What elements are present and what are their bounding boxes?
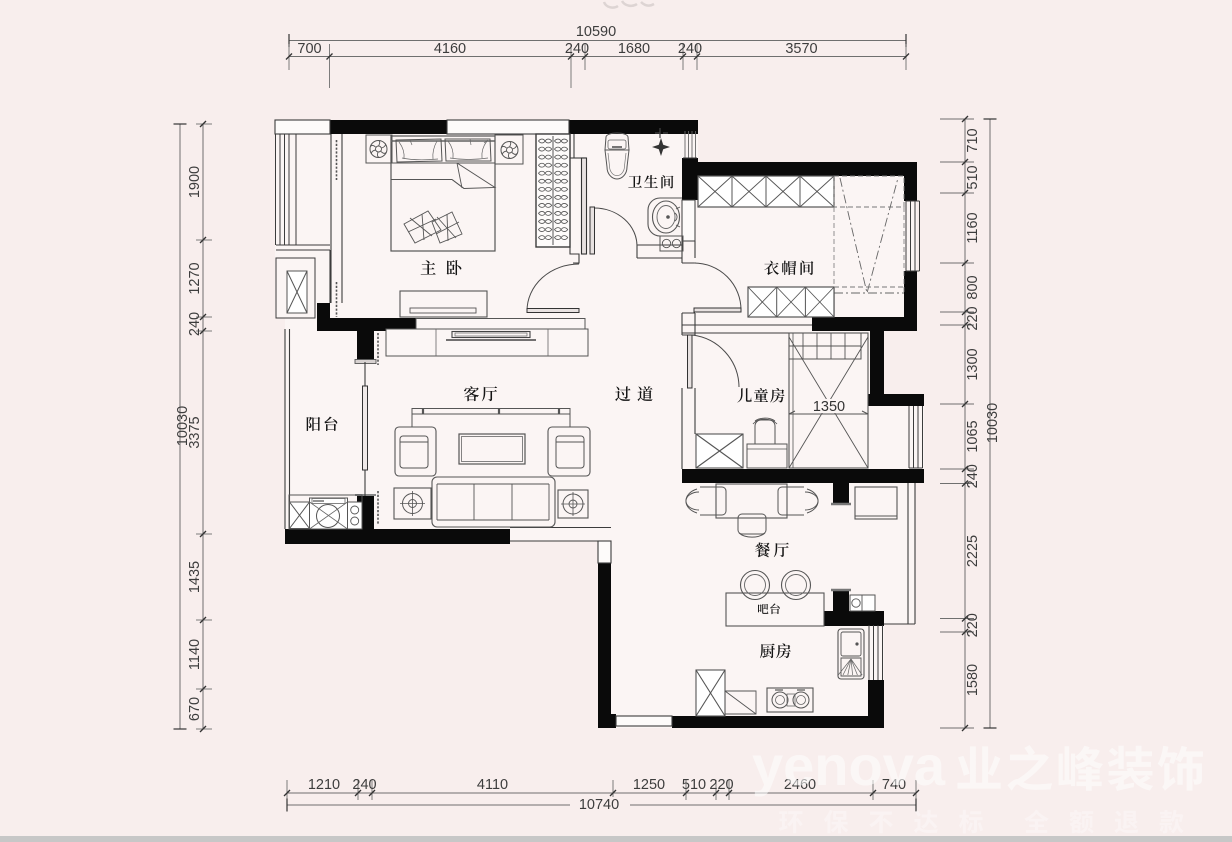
svg-text:1270: 1270 — [187, 262, 203, 294]
svg-text:240: 240 — [187, 312, 203, 336]
svg-text:220: 220 — [965, 613, 981, 637]
svg-text:2225: 2225 — [965, 535, 981, 567]
svg-text:10590: 10590 — [576, 24, 616, 40]
svg-text:510: 510 — [682, 777, 706, 793]
svg-text:240: 240 — [678, 41, 702, 57]
svg-text:1065: 1065 — [965, 420, 981, 452]
svg-text:220: 220 — [709, 777, 733, 793]
svg-text:1680: 1680 — [618, 41, 650, 57]
svg-text:3570: 3570 — [785, 41, 817, 57]
svg-text:yenova: yenova — [752, 734, 946, 797]
svg-text:10030: 10030 — [985, 403, 1001, 443]
svg-text:10740: 10740 — [579, 797, 619, 813]
svg-text:1580: 1580 — [965, 664, 981, 696]
svg-text:1140: 1140 — [187, 639, 203, 670]
svg-text:1435: 1435 — [187, 561, 203, 593]
svg-text:800: 800 — [965, 275, 981, 299]
svg-text:240: 240 — [565, 41, 589, 57]
svg-text:10030: 10030 — [175, 406, 191, 446]
svg-text:4110: 4110 — [477, 777, 508, 793]
svg-text:220: 220 — [965, 306, 981, 330]
svg-text:1250: 1250 — [633, 777, 665, 793]
svg-text:1900: 1900 — [187, 166, 203, 198]
svg-text:1210: 1210 — [308, 777, 340, 793]
svg-text:710: 710 — [965, 128, 981, 152]
svg-text:510: 510 — [965, 165, 981, 189]
svg-text:240: 240 — [965, 464, 981, 488]
svg-text:1350: 1350 — [813, 399, 845, 415]
svg-text:1160: 1160 — [965, 212, 981, 243]
svg-text:240: 240 — [352, 777, 376, 793]
svg-text:670: 670 — [187, 697, 203, 721]
svg-text:1300: 1300 — [965, 348, 981, 380]
svg-text:700: 700 — [297, 41, 321, 57]
svg-text:4160: 4160 — [434, 41, 466, 57]
